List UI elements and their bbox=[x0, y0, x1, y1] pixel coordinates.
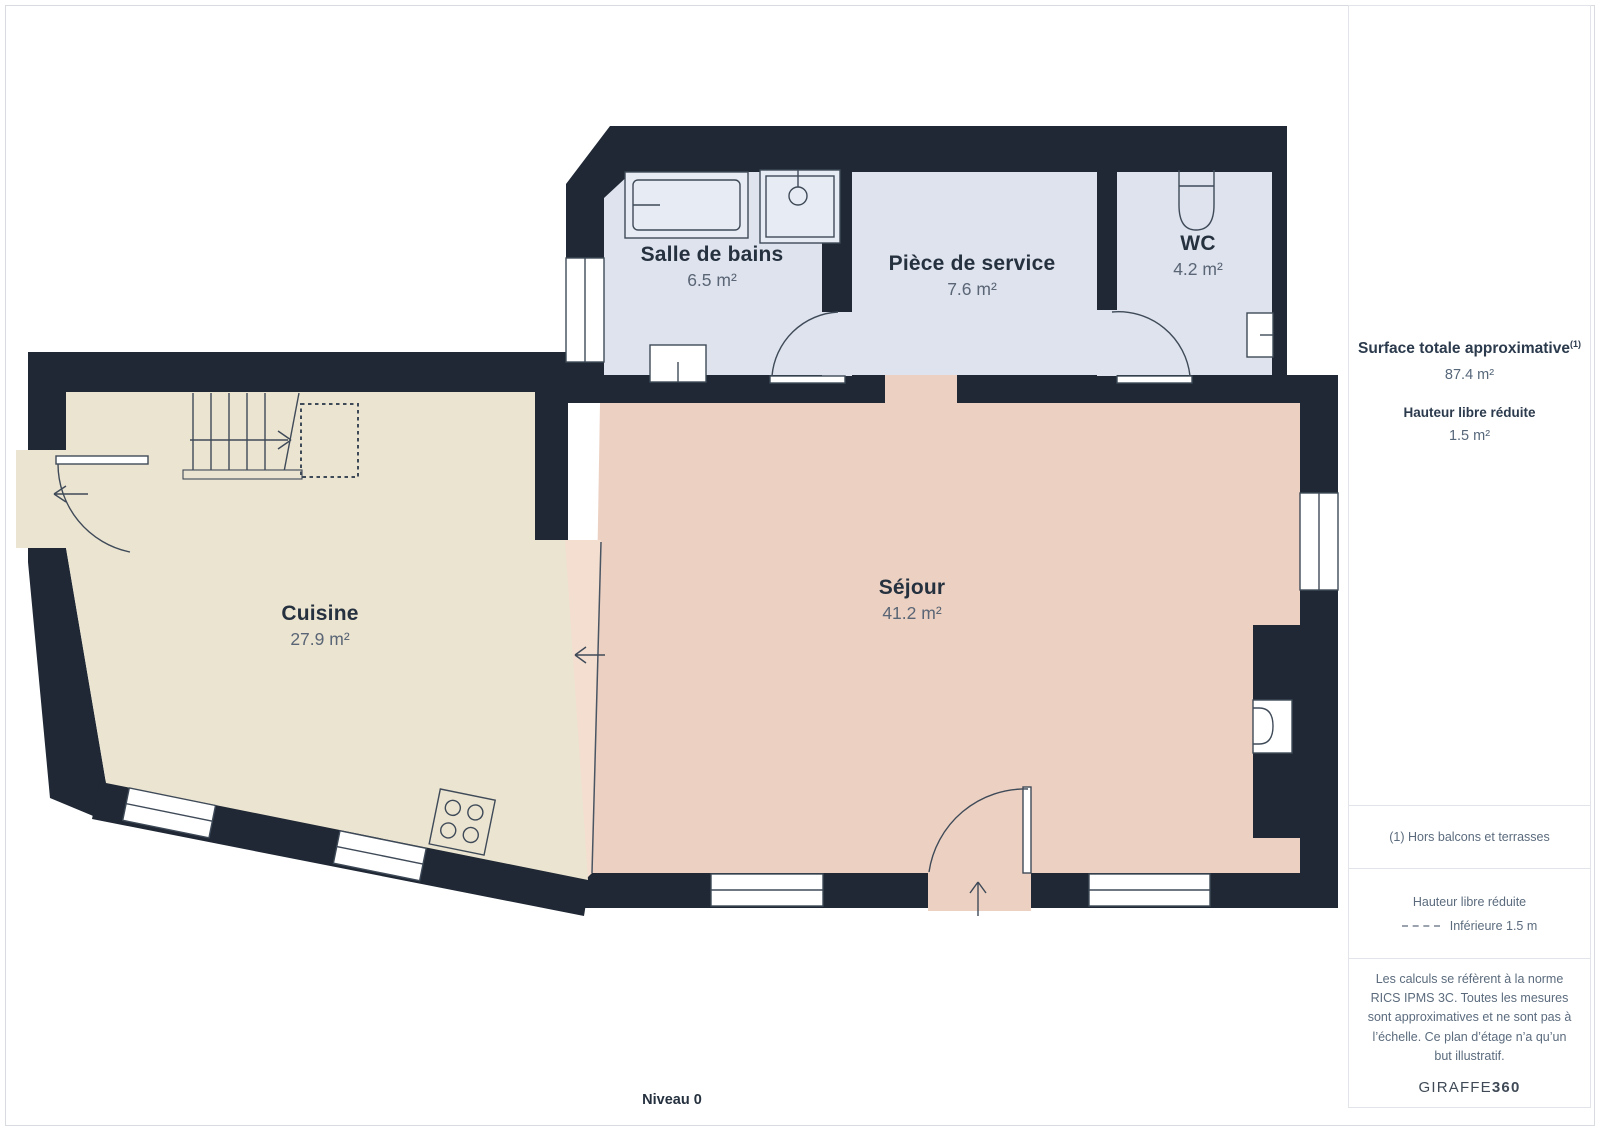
sidebar-legend: Hauteur libre réduite Inférieure 1.5 m bbox=[1348, 868, 1591, 959]
floor-plan: Salle de bains 6.5 m² Pièce de service 7… bbox=[0, 0, 1348, 1131]
wc-door-gap bbox=[1097, 310, 1117, 376]
reduced-height-label: Hauteur libre réduite bbox=[1403, 405, 1535, 420]
giraffe360-logo: GIRAFFE360 bbox=[1418, 1079, 1520, 1096]
bathroom-sink-icon bbox=[650, 345, 706, 382]
legend-row: Inférieure 1.5 m bbox=[1402, 919, 1538, 933]
sidebar-footnote: (1) Hors balcons et terrasses bbox=[1348, 805, 1591, 869]
bathtub-icon bbox=[625, 172, 748, 238]
room-name: Séjour bbox=[879, 575, 946, 601]
sidebar-disclaimer: Les calculs se réfèrent à la norme RICS … bbox=[1348, 958, 1591, 1108]
bathroom-door-gap bbox=[822, 312, 852, 376]
shower-icon bbox=[760, 170, 840, 243]
living-room-floor bbox=[592, 403, 1300, 873]
room-area: 41.2 m² bbox=[879, 603, 946, 625]
room-area: 4.2 m² bbox=[1173, 259, 1223, 281]
room-label-piece-de-service: Pièce de service 7.6 m² bbox=[889, 251, 1056, 301]
room-name: Salle de bains bbox=[641, 242, 784, 268]
room-area: 6.5 m² bbox=[641, 270, 784, 292]
disclaimer-text: Les calculs se réfèrent à la norme RICS … bbox=[1365, 970, 1575, 1067]
room-name: WC bbox=[1173, 231, 1223, 257]
legend-dash-line bbox=[1402, 925, 1440, 927]
total-area-label: Surface totale approximative(1) bbox=[1358, 339, 1581, 358]
room-name: Cuisine bbox=[281, 601, 358, 627]
entry-door-gap bbox=[928, 873, 1031, 911]
total-area-value: 87.4 m² bbox=[1445, 367, 1494, 383]
room-label-salle-de-bains: Salle de bains 6.5 m² bbox=[641, 242, 784, 292]
bathroom-window bbox=[566, 258, 604, 362]
sidebar-summary: Surface totale approximative(1) 87.4 m² … bbox=[1348, 5, 1591, 806]
footnote-text: (1) Hors balcons et terrasses bbox=[1389, 830, 1549, 844]
living-bottom-window-right bbox=[1089, 874, 1210, 906]
legend-title: Hauteur libre réduite bbox=[1413, 895, 1526, 909]
room-name: Pièce de service bbox=[889, 251, 1056, 277]
reduced-height-value: 1.5 m² bbox=[1449, 428, 1490, 444]
room-label-wc: WC 4.2 m² bbox=[1173, 231, 1223, 281]
legend-item-text: Inférieure 1.5 m bbox=[1450, 919, 1538, 933]
wc-sink-icon bbox=[1247, 313, 1273, 357]
stove-icon bbox=[429, 789, 495, 855]
room-label-cuisine: Cuisine 27.9 m² bbox=[281, 601, 358, 651]
room-label-sejour: Séjour 41.2 m² bbox=[879, 575, 946, 625]
service-living-opening bbox=[885, 375, 957, 403]
radiator-icon bbox=[1253, 700, 1292, 753]
room-area: 27.9 m² bbox=[281, 629, 358, 651]
floor-plan-drawing bbox=[0, 0, 1348, 1131]
level-label: Niveau 0 bbox=[597, 1092, 747, 1108]
living-right-window bbox=[1300, 493, 1338, 590]
living-bottom-window-left bbox=[711, 874, 823, 906]
room-area: 7.6 m² bbox=[889, 279, 1056, 301]
